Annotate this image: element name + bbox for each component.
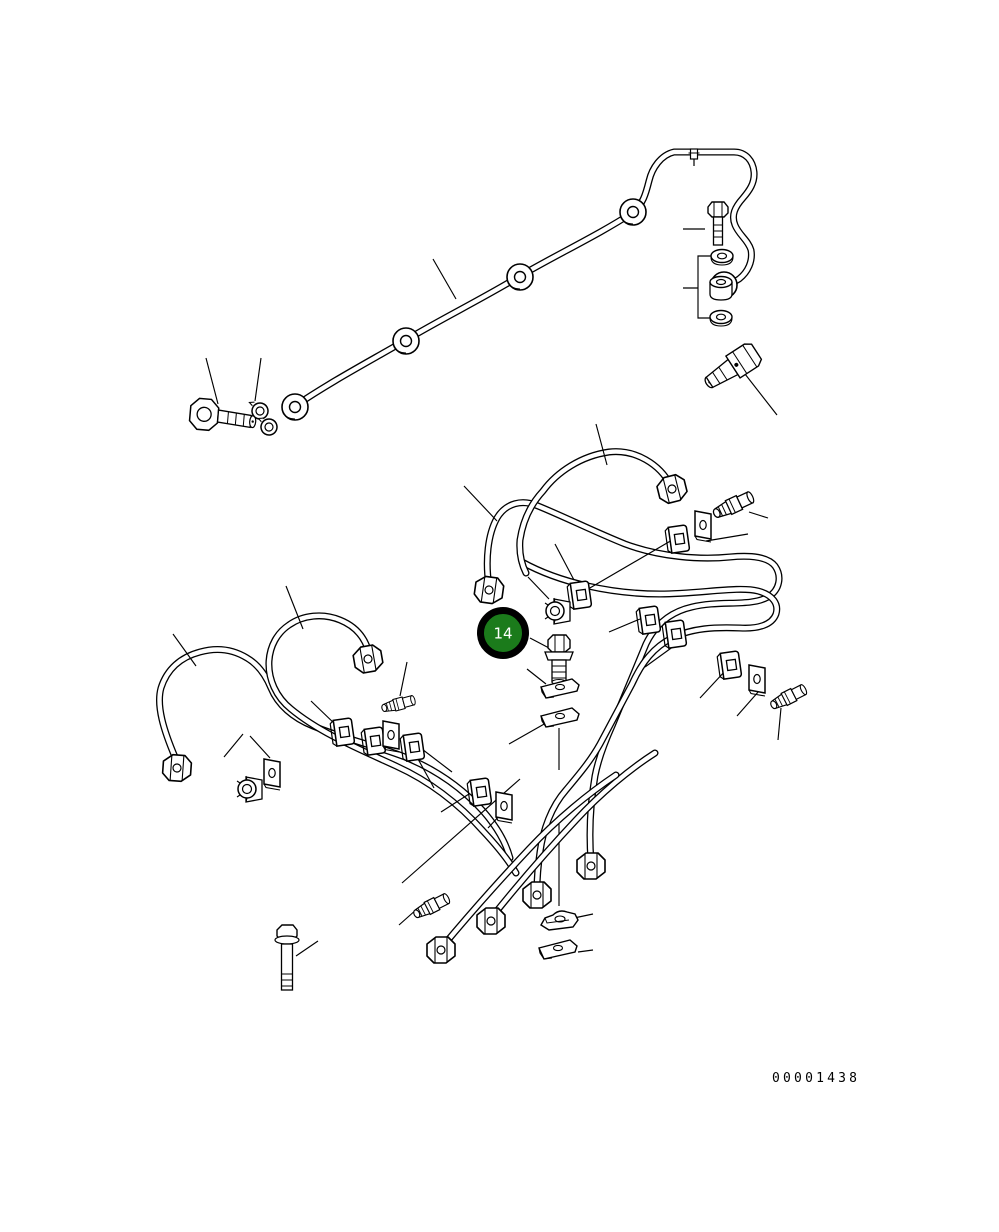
banjo-bolt: [189, 398, 257, 435]
wing-plate: [539, 940, 577, 959]
sleeve-nut: [162, 754, 192, 782]
connector-bolt-large: [700, 341, 764, 395]
injection-pipe-top-middle: [520, 452, 671, 573]
connector-bolt: [411, 892, 451, 921]
flat-washer: [710, 311, 732, 327]
clamp-plate: [695, 511, 711, 542]
eye-ring: [620, 199, 646, 225]
sleeve-nut: [523, 882, 551, 908]
eye-ring: [507, 264, 533, 290]
spacer-collar: [710, 277, 732, 301]
sleeve-nut: [477, 908, 505, 934]
clamp-plate: [264, 759, 280, 790]
nut-clamp: [237, 776, 262, 802]
nut-clamp: [545, 598, 570, 624]
connector-bolt: [768, 683, 808, 712]
flat-washer: [711, 250, 733, 266]
sleeve-nut: [352, 644, 384, 674]
pipe-clip-small: [689, 149, 700, 166]
clamp-bolt-part-14: [545, 635, 573, 685]
clamp-plate: [749, 665, 765, 696]
connector-bolt: [711, 490, 756, 522]
hex-bolt: [708, 202, 728, 245]
eye-ring: [282, 394, 308, 420]
sleeve-nut: [427, 937, 455, 963]
pipe-clip: [665, 525, 690, 554]
flange-bolt: [275, 925, 299, 990]
wing-plate: [541, 708, 579, 727]
callout-number: 14: [493, 625, 512, 643]
clamps: [237, 511, 765, 959]
eye-ring: [393, 328, 419, 354]
parts-diagram-page: 14 00001438: [0, 0, 999, 1232]
injection-pipe-left-front: [159, 650, 510, 858]
sleeve-nut: [473, 575, 504, 605]
sleeve-nut: [655, 473, 688, 505]
sleeve-nut: [577, 853, 605, 879]
pipe-clip: [636, 606, 661, 635]
connector-bolt: [380, 694, 416, 714]
drawing-number: 00001438: [772, 1071, 860, 1086]
parts-diagram-canvas: 14 00001438: [0, 0, 999, 1232]
part-callout-14[interactable]: 14: [481, 611, 526, 656]
clamp-plate: [496, 792, 512, 823]
washer-group-bracket: [683, 256, 712, 318]
saddle-clamp: [541, 911, 578, 930]
wing-plate: [541, 679, 579, 698]
